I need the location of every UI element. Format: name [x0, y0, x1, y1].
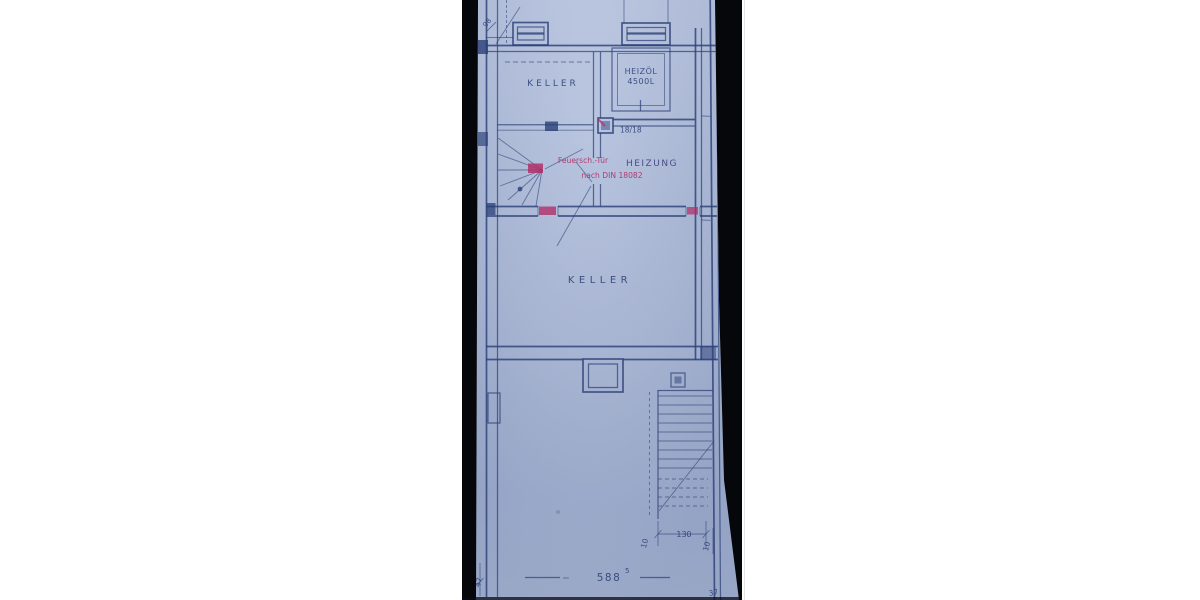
- room-label-heizung: HEIZUNG: [626, 159, 678, 169]
- room-label-heizoel-line2: 4500L: [627, 77, 654, 86]
- dim-bottom-width: 588: [597, 572, 622, 584]
- page-canvas: KELLER HEIZÖL 4500L 18/18 Feuersch.-Tür …: [0, 0, 1200, 600]
- stair-red-marker: [528, 164, 543, 174]
- dim-corner-left: 47: [473, 576, 484, 588]
- window-wells: [487, 0, 670, 45]
- exterior-walls: [477, 0, 721, 600]
- fire-door-note-line1: Feuersch.-Tür: [558, 156, 609, 165]
- straight-stair: [650, 373, 715, 519]
- winder-stair: [498, 138, 591, 246]
- fire-door-note-line2: nach DIN 18082: [581, 171, 642, 180]
- dim-stair-side-right: 10: [701, 540, 712, 552]
- bottom-dimension: [477, 563, 671, 596]
- door-marker-right: [687, 207, 698, 215]
- column-size-label: 18/18: [620, 126, 642, 135]
- room-label-heizoel-line1: HEIZÖL: [625, 66, 658, 76]
- column-18x18: [598, 118, 613, 133]
- room-label-keller-main: KELLER: [568, 275, 632, 286]
- room-label-keller-upper: KELLER: [527, 79, 579, 89]
- lower-wall: [486, 347, 718, 424]
- floor-plan-drawing: KELLER HEIZÖL 4500L 18/18 Feuersch.-Tür …: [462, 0, 742, 600]
- blueprint-paper: KELLER HEIZÖL 4500L 18/18 Feuersch.-Tür …: [462, 0, 742, 600]
- dividing-wall: [486, 203, 717, 216]
- labels: KELLER HEIZÖL 4500L 18/18 Feuersch.-Tür …: [473, 17, 719, 598]
- dim-bottom-width-sup: 5: [625, 567, 629, 575]
- dim-stair-side-left: 10: [639, 537, 650, 549]
- door-marker-left: [539, 207, 556, 216]
- photo-edge-shadow: [744, 0, 745, 600]
- dim-stair-width: 130: [676, 530, 691, 539]
- blueprint-photo: KELLER HEIZÖL 4500L 18/18 Feuersch.-Tür …: [462, 0, 742, 600]
